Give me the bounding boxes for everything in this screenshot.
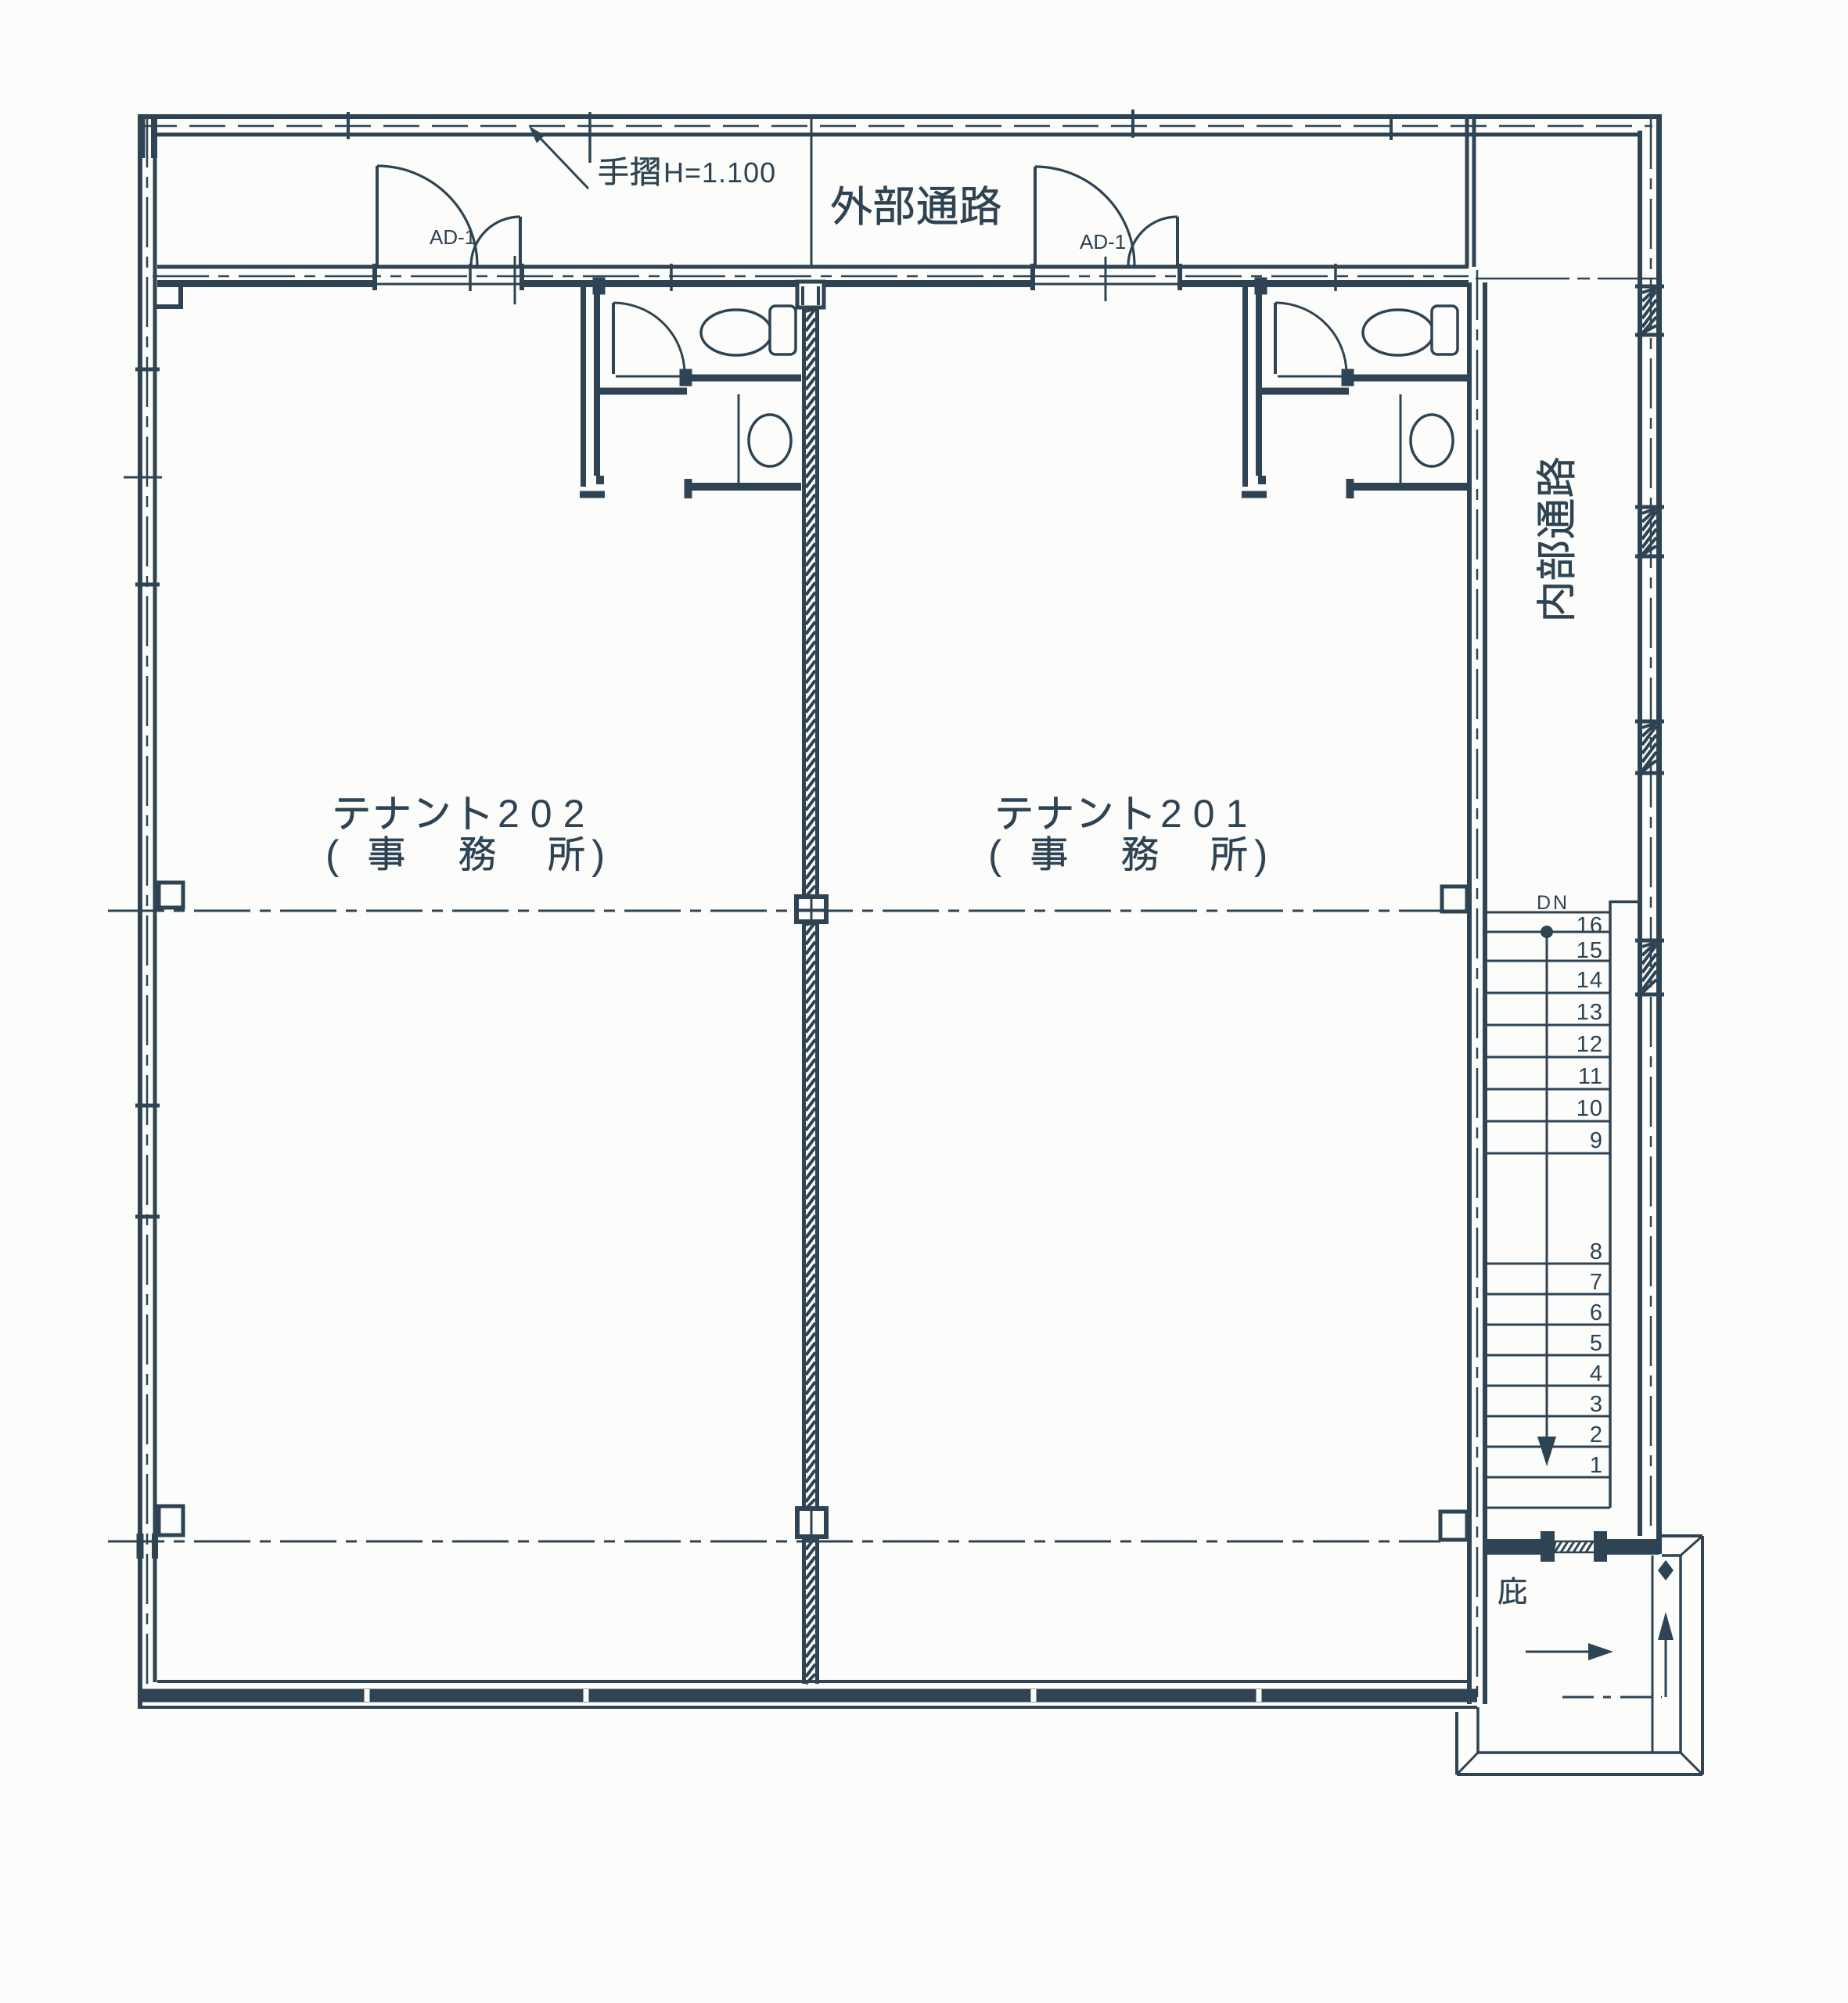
svg-text:13: 13 [1577,1000,1603,1025]
svg-text:(: ( [325,832,340,878]
svg-text:AD-1: AD-1 [430,225,476,249]
svg-text:201: 201 [1160,792,1258,836]
svg-text:): ) [1254,832,1267,878]
svg-text:16: 16 [1577,913,1603,938]
svg-text:12: 12 [1577,1032,1603,1057]
svg-text:1: 1 [1590,1453,1603,1478]
svg-text:8: 8 [1590,1239,1603,1264]
svg-text:7: 7 [1590,1270,1603,1295]
svg-text:(: ( [988,832,1002,878]
svg-text:AD-1: AD-1 [1080,230,1126,254]
svg-text:3: 3 [1590,1392,1603,1417]
svg-text:10: 10 [1577,1096,1603,1121]
svg-text:2: 2 [1590,1422,1603,1447]
svg-text:H=1.100: H=1.100 [663,156,776,189]
svg-text:): ) [591,832,605,878]
svg-text:11: 11 [1578,1064,1603,1089]
svg-text:5: 5 [1590,1331,1603,1356]
svg-text:14: 14 [1577,968,1603,993]
svg-text:4: 4 [1590,1361,1603,1386]
svg-text:15: 15 [1577,938,1603,963]
svg-text:6: 6 [1590,1300,1603,1325]
svg-text:DN: DN [1537,892,1569,914]
svg-text:202: 202 [498,792,595,836]
svg-text:9: 9 [1590,1128,1603,1153]
